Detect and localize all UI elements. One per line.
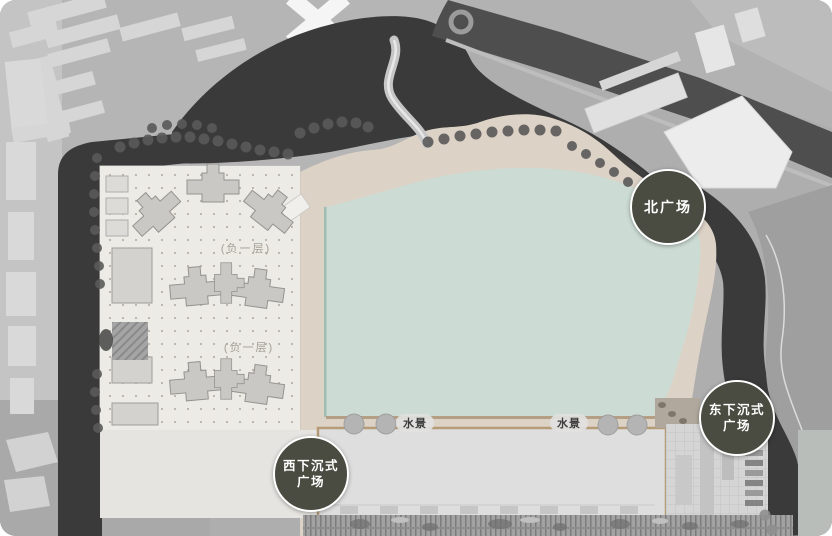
badge-west-line2: 广场 — [297, 474, 325, 490]
site-plan: (负一层) (负一层) 水景 水景 北广场 东下沉式 广场 西下沉式 广场 — [0, 0, 832, 536]
badge-north-plaza: 北广场 — [630, 169, 706, 245]
ramp — [112, 322, 148, 360]
water-feature-label-right: 水景 — [550, 414, 588, 432]
water-feature-label-left: 水景 — [396, 414, 434, 432]
basement-label-upper: (负一层) — [191, 240, 301, 256]
badge-east-line1: 东下沉式 — [709, 402, 765, 418]
badge-east-line2: 广场 — [723, 418, 751, 434]
badge-north-plaza-label: 北广场 — [644, 199, 692, 215]
site-plan-graphic — [0, 0, 832, 536]
badge-west-line1: 西下沉式 — [283, 458, 339, 474]
basement-label-lower: (负一层) — [194, 339, 304, 355]
section-strip — [303, 515, 793, 536]
badge-east-sunken-plaza: 东下沉式 广场 — [699, 380, 775, 456]
mall-building — [318, 428, 666, 517]
badge-west-sunken-plaza: 西下沉式 广场 — [273, 436, 349, 512]
